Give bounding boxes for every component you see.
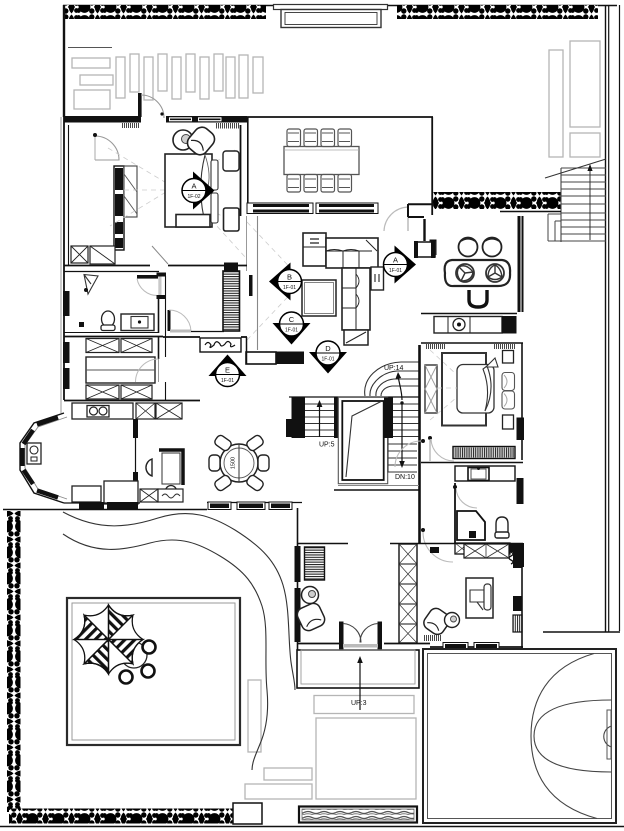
- svg-text:A: A: [393, 256, 398, 265]
- svg-text:UP:14: UP:14: [384, 365, 404, 372]
- svg-text:1F-01: 1F-01: [221, 378, 234, 384]
- svg-text:1F-02: 1F-02: [187, 194, 200, 200]
- svg-text:1500: 1500: [231, 457, 237, 469]
- svg-text:A: A: [191, 182, 196, 191]
- svg-text:D: D: [325, 344, 331, 353]
- svg-text:B: B: [287, 273, 292, 282]
- svg-text:1F-01: 1F-01: [389, 268, 402, 274]
- svg-text:C: C: [289, 315, 295, 324]
- svg-text:DN:10: DN:10: [395, 474, 415, 481]
- svg-text:1F-01: 1F-01: [285, 328, 298, 334]
- svg-text:UP:3: UP:3: [351, 700, 367, 707]
- svg-text:1F-01: 1F-01: [283, 285, 296, 291]
- svg-text:UP:5: UP:5: [319, 442, 335, 449]
- svg-text:E: E: [225, 366, 230, 375]
- svg-text:1F-01: 1F-01: [321, 357, 334, 363]
